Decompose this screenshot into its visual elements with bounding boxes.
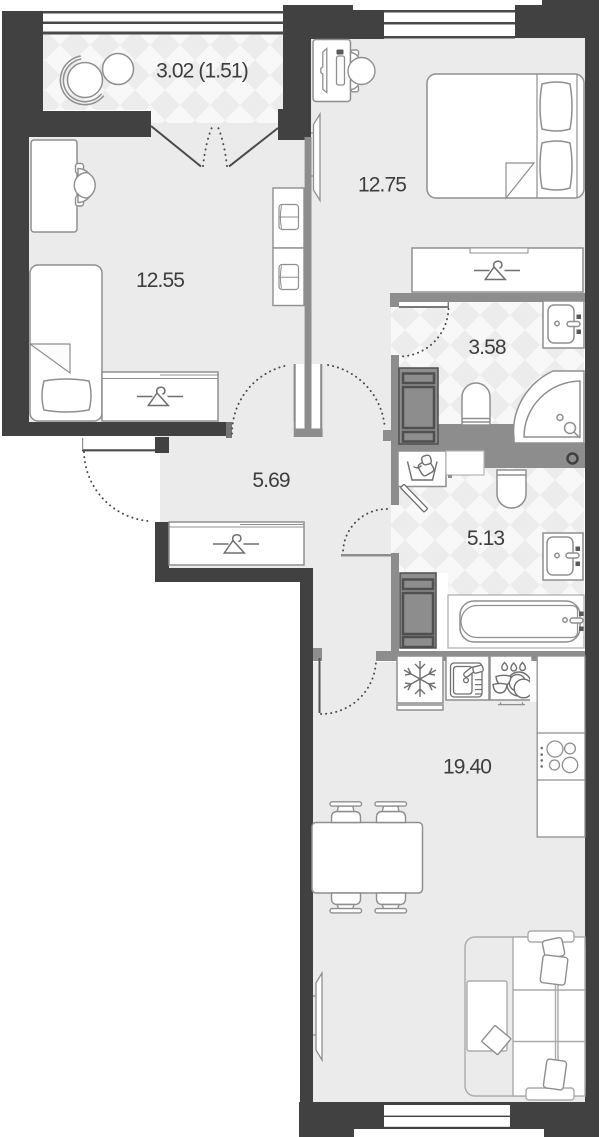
svg-text:12.75: 12.75 <box>358 174 406 197</box>
svg-text:5.13: 5.13 <box>467 527 504 550</box>
svg-text:3.02 (1.51): 3.02 (1.51) <box>156 60 248 83</box>
svg-text:12.55: 12.55 <box>136 269 184 292</box>
svg-text:3.58: 3.58 <box>468 336 505 359</box>
svg-text:5.69: 5.69 <box>252 469 289 492</box>
svg-text:19.40: 19.40 <box>443 756 491 779</box>
